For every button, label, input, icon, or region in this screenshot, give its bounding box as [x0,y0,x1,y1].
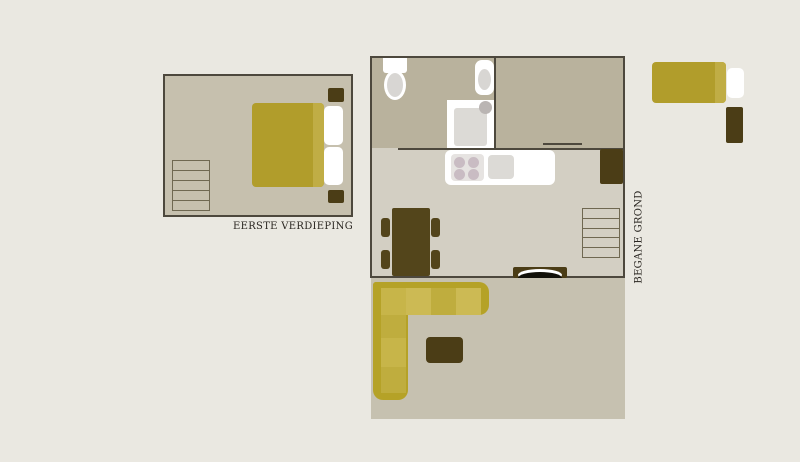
burner-icon [454,169,465,180]
washbasin-icon [475,60,494,95]
bathroom [372,58,494,148]
sofa-cushion [381,338,406,367]
nightstand-icon [328,88,344,102]
kitchen-sink-icon [488,155,514,179]
living-room [371,278,625,419]
burner-icon [454,157,465,168]
chair-icon [381,218,390,237]
sofa-cushion [381,315,406,338]
stair-step [583,229,619,239]
sofa-cushion [406,288,431,315]
burner-icon [468,169,479,180]
sofa-cushion [381,367,406,393]
wardrobe-icon [600,149,623,184]
pillow-icon [324,106,343,145]
shower-head-icon [479,101,492,114]
stairs-icon [172,160,210,211]
first-floor-label: EERSTE VERDIEPING [163,221,353,232]
nightstand-icon [328,190,344,203]
ground-floor-label: BEGANE GROND [634,190,645,283]
first-floor-room [163,74,353,217]
double-bed-icon [252,103,324,187]
coffee-table-icon [426,337,463,363]
toilet-bowl-basin [387,73,403,97]
nightstand-icon [726,107,743,143]
blanket-fold [715,62,726,103]
stair-step [583,219,619,229]
stair-step [583,238,619,248]
stair-step [173,161,209,171]
sofa-cushion [381,288,406,315]
burner-icon [468,157,479,168]
stair-step [583,209,619,219]
floor-plan-canvas: EERSTE VERDIEPING [0,0,800,462]
sofa-cushions [381,315,406,393]
sofa-cushion [456,288,481,315]
sofa-cushions [381,288,481,315]
stairs-icon [582,208,620,258]
single-bed-icon [652,62,726,103]
washbasin-bowl [478,69,491,90]
shower-tray [454,108,487,146]
stair-step [173,201,209,210]
blanket-fold [313,103,324,187]
bedroom [496,58,623,148]
shower-icon [447,100,494,148]
chair-icon [431,250,440,269]
kitchen-counter [445,150,555,185]
door-line [543,143,582,145]
toilet-bowl-icon [384,70,406,100]
dining-table-icon [392,208,430,276]
stair-step [173,171,209,181]
pillow-icon [727,68,744,98]
sofa-cushion [431,288,456,315]
chair-icon [431,218,440,237]
stove-icon [451,154,484,181]
stair-step [173,181,209,191]
ground-floor-plan [370,56,625,278]
stair-step [173,191,209,201]
pillow-icon [324,147,343,185]
stair-step [583,248,619,257]
chair-icon [381,250,390,269]
fireplace-icon [513,267,567,278]
